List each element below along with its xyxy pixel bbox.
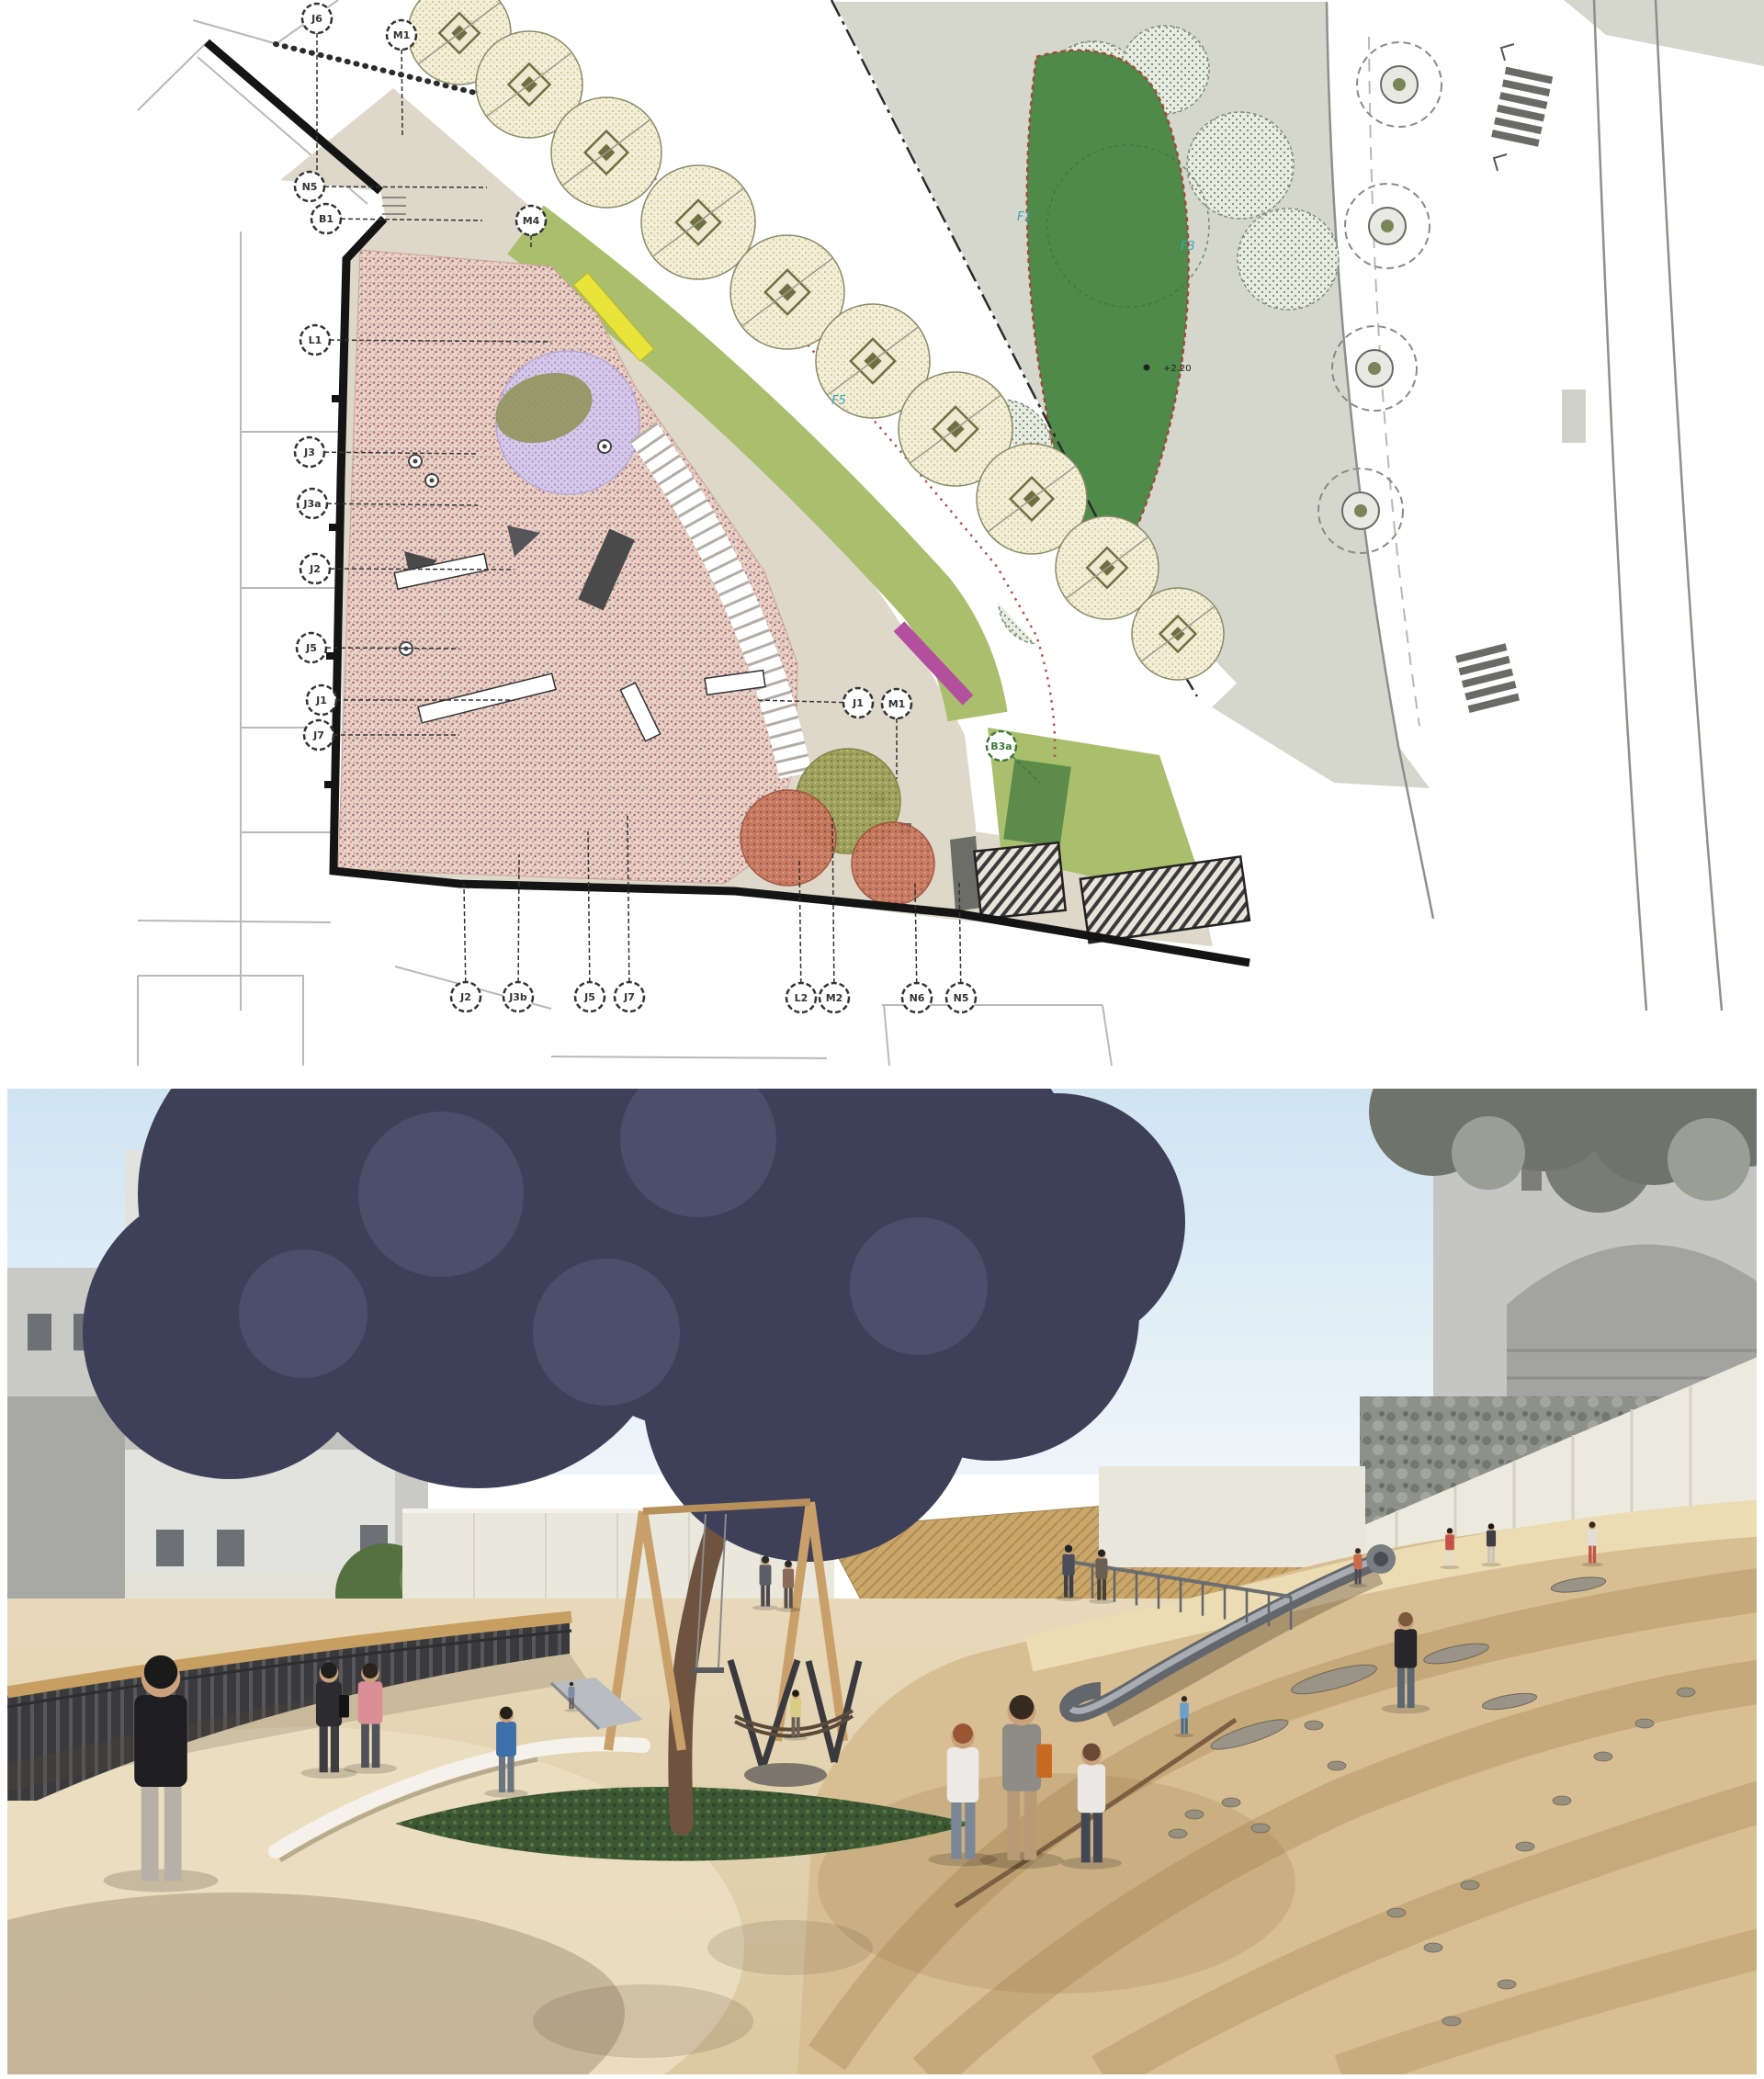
foothold — [1424, 1943, 1442, 1952]
page: F1F3F5+2.20 J6M1N5B1L1J3J3aJ2J5J1J7M4J1M… — [0, 0, 1764, 2079]
svg-text:J7: J7 — [623, 991, 635, 1003]
svg-text:B1: B1 — [319, 213, 334, 225]
foothold — [1594, 1752, 1612, 1761]
svg-text:J5: J5 — [583, 991, 595, 1003]
foothold — [1553, 1796, 1571, 1805]
foothold — [1461, 1881, 1479, 1890]
foothold — [1185, 1810, 1204, 1819]
foothold — [1222, 1798, 1240, 1807]
svg-text:M1: M1 — [393, 29, 411, 41]
foothold — [1498, 1980, 1516, 1989]
svg-text:B3a: B3a — [990, 740, 1012, 752]
svg-text:N5: N5 — [954, 992, 969, 1004]
site-plan-drawing: F1F3F5+2.20 J6M1N5B1L1J3J3aJ2J5J1J7M4J1M… — [0, 0, 1764, 1070]
area-label: F3 — [1181, 240, 1195, 254]
foothold — [1305, 1721, 1323, 1730]
canopy-tree — [852, 822, 934, 905]
svg-text:N6: N6 — [910, 992, 925, 1004]
svg-text:J6: J6 — [311, 13, 322, 25]
foothold — [1251, 1824, 1270, 1833]
canopy-tree — [741, 790, 836, 886]
svg-text:L2: L2 — [795, 992, 808, 1004]
svg-text:J3b: J3b — [508, 991, 527, 1003]
foothold — [1169, 1829, 1187, 1838]
playground-rendering-figure — [7, 1089, 1757, 2074]
foothold — [1387, 1908, 1406, 1917]
svg-text:L1: L1 — [309, 334, 322, 346]
svg-text:M2: M2 — [826, 992, 843, 1004]
svg-text:J5: J5 — [305, 642, 317, 654]
svg-text:J7: J7 — [312, 729, 324, 741]
foothold — [1328, 1761, 1346, 1770]
svg-text:J1: J1 — [852, 697, 864, 709]
new-tree — [551, 97, 661, 208]
area-label: F5 — [831, 394, 846, 408]
foothold — [1442, 2017, 1461, 2026]
svg-text:J1: J1 — [315, 695, 327, 706]
svg-text:M4: M4 — [523, 215, 540, 227]
spot-level-text: +2.20 — [1163, 364, 1192, 374]
svg-text:J2: J2 — [459, 991, 471, 1003]
spot-level-dot — [1144, 365, 1150, 371]
foothold — [1635, 1719, 1654, 1728]
existing-tree — [1187, 112, 1294, 219]
new-tree — [1132, 588, 1224, 680]
wall-top-right-white — [1099, 1466, 1365, 1567]
existing-tree — [1238, 209, 1339, 310]
svg-text:J2: J2 — [309, 563, 321, 575]
foothold — [1516, 1842, 1534, 1851]
svg-text:M1: M1 — [888, 698, 906, 710]
foothold — [1677, 1688, 1695, 1697]
svg-text:J3: J3 — [303, 446, 315, 458]
svg-text:J3a: J3a — [302, 498, 321, 510]
playground-rendering — [7, 1089, 1757, 2074]
site-plan-figure: F1F3F5+2.20 J6M1N5B1L1J3J3aJ2J5J1J7M4J1M… — [0, 0, 1764, 1070]
area-label: F1 — [1017, 210, 1032, 224]
svg-text:N5: N5 — [302, 181, 318, 193]
